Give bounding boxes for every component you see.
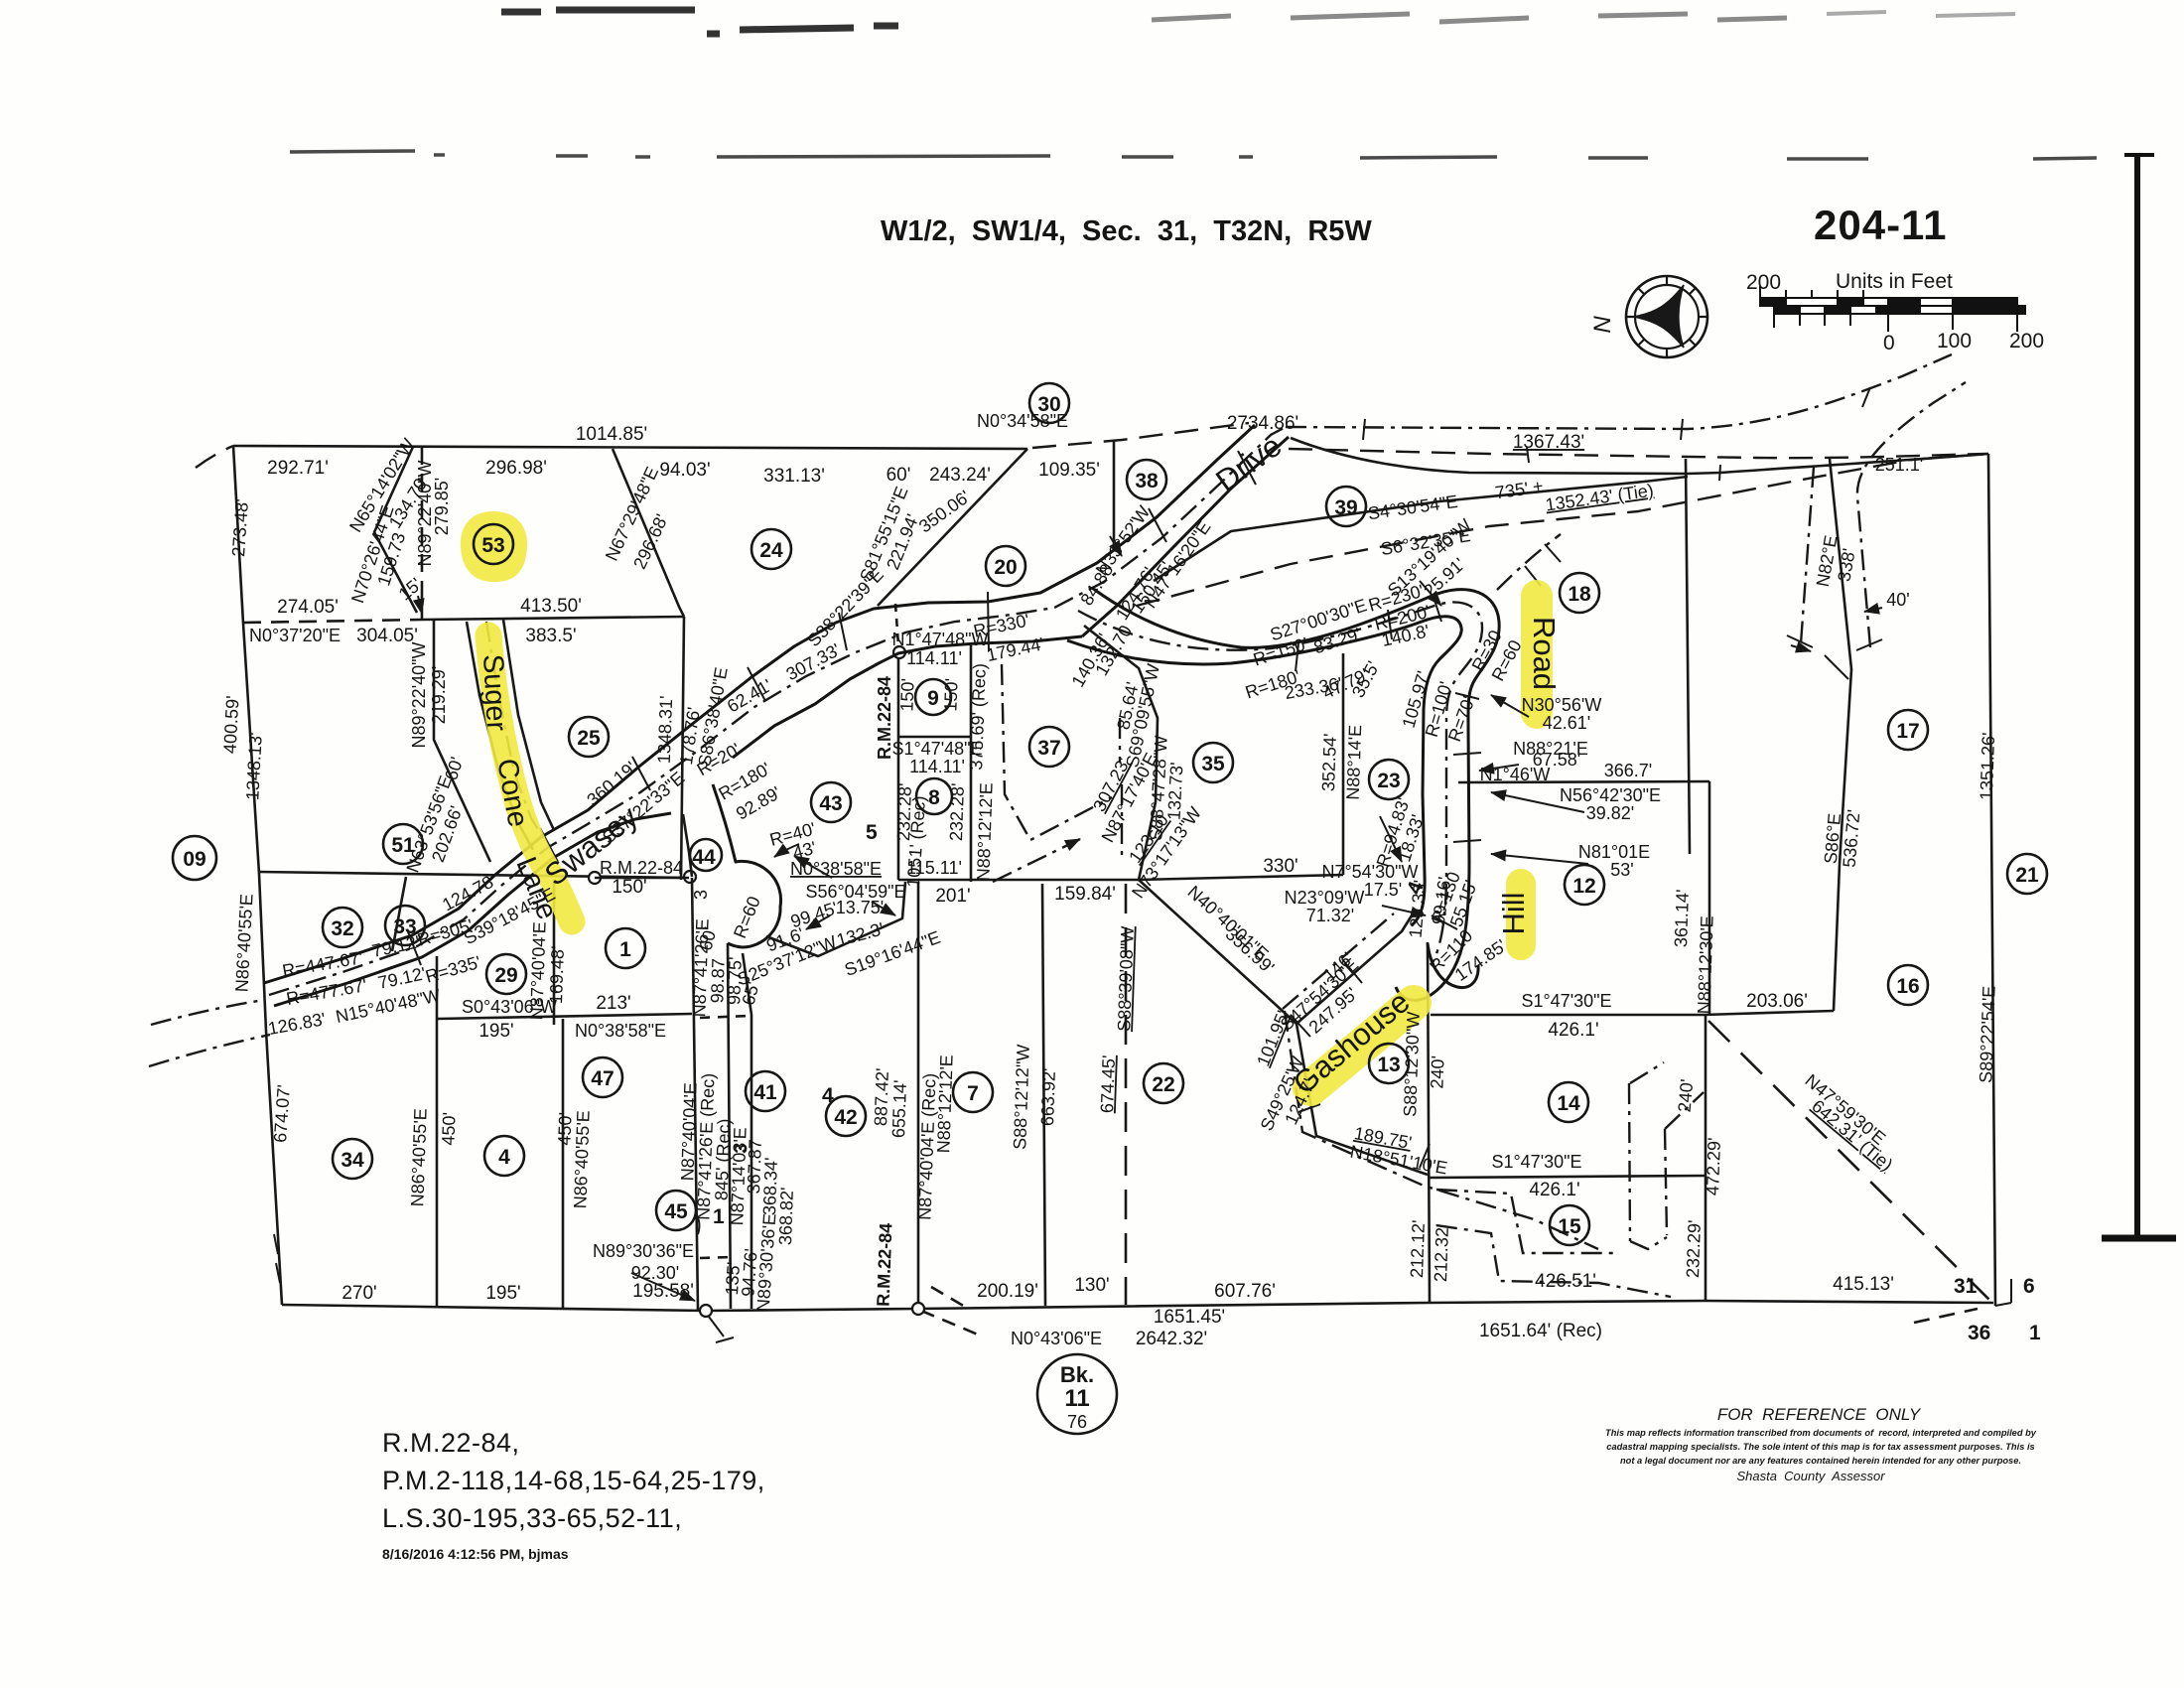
svg-text:274.05': 274.05' [277, 597, 339, 618]
svg-text:N88°12'12'E: N88°12'12'E [933, 1055, 956, 1154]
svg-text:39: 39 [1334, 496, 1357, 519]
svg-text:4: 4 [498, 1146, 510, 1169]
svg-text:114.11': 114.11' [909, 757, 965, 776]
svg-text:1: 1 [713, 1205, 725, 1228]
svg-text:200: 200 [2009, 330, 2044, 352]
svg-text:N7°54'30"W: N7°54'30"W [1321, 862, 1418, 882]
svg-text:472.29': 472.29' [1703, 1137, 1724, 1196]
svg-text:8: 8 [928, 786, 940, 809]
svg-text:663.92': 663.92' [1037, 1067, 1059, 1126]
svg-text:674.07': 674.07' [270, 1084, 294, 1144]
svg-text:212.32': 212.32' [1431, 1223, 1452, 1282]
svg-text:2642.32': 2642.32' [1136, 1329, 1207, 1349]
svg-text:L.S.30-195,33-65,52-11,: L.S.30-195,33-65,52-11, [382, 1503, 682, 1533]
svg-text:N88°12'12'E: N88°12'12'E [973, 782, 996, 882]
svg-text:361.14': 361.14' [1671, 889, 1693, 947]
svg-text:40': 40' [1886, 590, 1909, 610]
svg-text:P.M.2-118,14-68,15-64,25-179,: P.M.2-118,14-68,15-64,25-179, [382, 1466, 765, 1495]
svg-text:383.5': 383.5' [525, 626, 576, 646]
svg-text:N0°38'58"E: N0°38'58"E [575, 1021, 666, 1041]
svg-text:240': 240' [1675, 1078, 1698, 1113]
svg-text:31: 31 [1954, 1275, 1978, 1298]
svg-text:20: 20 [994, 556, 1017, 579]
svg-text:17: 17 [1896, 720, 1919, 743]
svg-text:R.M.22-84: R.M.22-84 [600, 858, 683, 878]
svg-text:N0°43'06"E: N0°43'06"E [1011, 1329, 1102, 1348]
svg-text:FOR REFERENCE ONLY: FOR REFERENCE ONLY [1717, 1405, 1922, 1424]
svg-text:201': 201' [935, 886, 970, 907]
svg-text:32: 32 [331, 917, 353, 940]
svg-text:43: 43 [819, 792, 842, 815]
svg-text:331.13': 331.13' [763, 466, 825, 487]
svg-text:150': 150' [612, 877, 646, 898]
svg-text:415.13': 415.13' [1833, 1274, 1894, 1295]
svg-text:195': 195' [478, 1021, 513, 1042]
svg-text:674.45': 674.45' [1097, 1055, 1119, 1113]
svg-text:413.50': 413.50' [520, 596, 582, 617]
svg-text:N88°14'E: N88°14'E [1343, 725, 1366, 800]
svg-text:Suger: Suger [477, 653, 512, 732]
svg-text:53': 53' [1610, 860, 1633, 880]
svg-text:S88°12'12"W: S88°12'12"W [1010, 1044, 1033, 1150]
svg-text:17.5': 17.5' [1364, 880, 1402, 900]
svg-text:44: 44 [692, 846, 716, 869]
svg-text:35: 35 [1201, 753, 1225, 775]
svg-text:426.51': 426.51' [1535, 1271, 1596, 1292]
svg-text:3: 3 [691, 890, 711, 900]
svg-text:36: 36 [1968, 1322, 1990, 1344]
svg-text:1651.45': 1651.45' [1154, 1307, 1225, 1328]
svg-text:42: 42 [834, 1106, 857, 1129]
svg-text:S1°47'30"E: S1°47'30"E [1491, 1152, 1581, 1172]
svg-text:352.54': 352.54' [1318, 733, 1340, 791]
svg-text:169.48': 169.48' [546, 945, 568, 1004]
svg-text:15: 15 [1558, 1215, 1581, 1238]
svg-text:45: 45 [664, 1200, 688, 1223]
svg-text:34: 34 [341, 1149, 364, 1172]
svg-text:1651.64' (Rec): 1651.64' (Rec) [1479, 1321, 1602, 1341]
svg-text:213': 213' [596, 993, 630, 1014]
svg-text:12: 12 [1572, 875, 1595, 898]
svg-text:195.58': 195.58' [632, 1281, 694, 1302]
svg-text:24: 24 [759, 539, 783, 562]
svg-text:13.75': 13.75' [836, 898, 884, 917]
svg-text:N56°42'30"E: N56°42'30"E [1560, 785, 1661, 805]
svg-text:204-11: 204-11 [1814, 202, 1947, 248]
svg-text:1351.26': 1351.26' [1977, 732, 1998, 800]
svg-text:51: 51 [391, 834, 415, 857]
svg-text:Bk.: Bk. [1060, 1362, 1094, 1387]
svg-text:N86°40'55'E: N86°40'55'E [570, 1110, 593, 1209]
svg-text:R.M.22-84: R.M.22-84 [874, 1222, 896, 1307]
svg-text:47: 47 [591, 1067, 614, 1090]
svg-text:219.29': 219.29' [429, 666, 449, 725]
svg-text:16: 16 [1896, 975, 1919, 998]
svg-text:6: 6 [2023, 1275, 2035, 1298]
svg-text:22: 22 [1152, 1073, 1174, 1096]
svg-text:21: 21 [2015, 864, 2039, 887]
svg-text:N23°09'W: N23°09'W [1285, 888, 1365, 908]
svg-text:3: 3 [731, 1143, 751, 1154]
svg-text:Units in Feet: Units in Feet [1836, 270, 1953, 293]
svg-text:9: 9 [927, 687, 939, 710]
svg-text:18: 18 [1568, 583, 1591, 606]
svg-text:109.35': 109.35' [1038, 460, 1100, 481]
svg-text:N89°30'36"E: N89°30'36"E [593, 1241, 694, 1261]
svg-text:Shasta County Assessor: Shasta County Assessor [1736, 1469, 1885, 1483]
svg-text:100: 100 [1937, 330, 1972, 352]
svg-text:Road: Road [1527, 617, 1562, 690]
svg-text:N1°46'W: N1°46'W [1480, 765, 1551, 784]
svg-text:92.30': 92.30' [631, 1263, 679, 1283]
svg-text:1348.13': 1348.13' [242, 732, 266, 800]
svg-text:N86°40'55'E: N86°40'55'E [407, 1108, 430, 1207]
svg-text:330': 330' [1263, 856, 1297, 877]
svg-text:94.03': 94.03' [659, 460, 710, 481]
svg-text:296.98': 296.98' [485, 458, 547, 479]
svg-text:This map reflects information: This map reflects information transcribe… [1605, 1428, 2037, 1438]
svg-text:13: 13 [1377, 1054, 1400, 1076]
svg-text:273.48': 273.48' [228, 498, 252, 558]
svg-text:0: 0 [1883, 332, 1895, 354]
svg-text:29: 29 [494, 964, 517, 987]
svg-text:426.1': 426.1' [1529, 1180, 1579, 1200]
svg-text:292.71': 292.71' [267, 458, 329, 479]
svg-text:1367.43': 1367.43' [1513, 432, 1584, 453]
svg-text:30: 30 [1037, 393, 1060, 416]
svg-text:33: 33 [393, 915, 416, 938]
svg-text:cadastral mapping specialists.: cadastral mapping specialists. The sole … [1606, 1442, 2034, 1452]
svg-text:243.24': 243.24' [929, 465, 991, 486]
svg-text:N88°12'30'E: N88°12'30'E [1694, 915, 1716, 1015]
svg-text:53: 53 [481, 534, 504, 557]
svg-text:426.1': 426.1' [1548, 1020, 1598, 1041]
svg-text:42.61': 42.61' [1543, 713, 1590, 733]
svg-text:41: 41 [753, 1081, 777, 1104]
svg-text:251.1': 251.1' [1875, 455, 1923, 475]
svg-text:375.69' (Rec): 375.69' (Rec) [966, 663, 990, 771]
svg-text:23: 23 [1377, 770, 1400, 792]
svg-text:655.14': 655.14' [888, 1079, 910, 1138]
svg-text:S88°39'08"W: S88°39'08"W [1114, 925, 1138, 1032]
svg-text:8/16/2016 4:12:56 PM, bjmas: 8/16/2016 4:12:56 PM, bjmas [382, 1546, 569, 1562]
svg-text:400.59': 400.59' [219, 695, 242, 754]
svg-text:N89°22'40"W: N89°22'40"W [409, 641, 429, 748]
svg-text:114.11': 114.11' [906, 648, 962, 668]
svg-text:279.85': 279.85' [432, 478, 452, 536]
svg-text:212.12': 212.12' [1407, 1219, 1429, 1278]
svg-text:366.7': 366.7' [1604, 761, 1652, 780]
svg-text:N81°01E: N81°01E [1578, 842, 1650, 862]
svg-text:232.28': 232.28' [946, 782, 968, 841]
svg-text:N0°37'20"E: N0°37'20"E [249, 626, 341, 645]
svg-text:S1°47'30"E: S1°47'30"E [1521, 991, 1611, 1011]
svg-text:60': 60' [887, 465, 911, 486]
svg-text:1014.85': 1014.85' [576, 424, 647, 445]
svg-text:S88°12'30"W: S88°12'30"W [1400, 1011, 1424, 1117]
svg-text:R.M.22-84,: R.M.22-84, [382, 1428, 520, 1458]
svg-text:1: 1 [619, 938, 631, 961]
svg-text:1: 1 [2029, 1322, 2041, 1344]
svg-text:39.82': 39.82' [1586, 803, 1634, 823]
svg-text:76: 76 [1067, 1412, 1087, 1432]
svg-text:2734.86': 2734.86' [1227, 413, 1298, 434]
svg-text:37: 37 [1037, 737, 1060, 760]
svg-text:Hill: Hill [1496, 892, 1531, 934]
svg-text:11: 11 [1064, 1385, 1089, 1412]
svg-text:270': 270' [341, 1283, 376, 1304]
svg-text:N: N [1589, 316, 1616, 334]
svg-text:W1/2, SW1/4, Sec. 31, T32N: W1/2, SW1/4, Sec. 31, T32N, R5W [881, 215, 1372, 247]
svg-text:09: 09 [183, 848, 205, 871]
svg-text:N30°56'W: N30°56'W [1522, 695, 1602, 715]
svg-text:240': 240' [1427, 1055, 1447, 1089]
svg-text:200.19': 200.19' [977, 1281, 1038, 1302]
svg-text:S89°22'54'E: S89°22'54'E [1976, 985, 1998, 1083]
svg-text:232.29': 232.29' [1683, 1219, 1705, 1278]
svg-text:38: 38 [1135, 470, 1159, 492]
svg-text:1348.31': 1348.31' [654, 695, 676, 764]
svg-text:159.84': 159.84' [1054, 884, 1116, 905]
svg-text:25: 25 [577, 727, 601, 750]
svg-text:607.76': 607.76' [1214, 1281, 1276, 1302]
svg-text:195': 195' [485, 1283, 520, 1304]
svg-text:4: 4 [822, 1084, 834, 1107]
svg-text:130': 130' [1074, 1275, 1109, 1296]
svg-text:14: 14 [1557, 1092, 1580, 1115]
svg-text:71.32': 71.32' [1306, 906, 1354, 925]
svg-text:450': 450' [438, 1112, 459, 1146]
svg-text:7: 7 [967, 1082, 979, 1105]
svg-text:200: 200 [1746, 271, 1781, 294]
svg-text:not a legal document nor are a: not a legal document nor are any feature… [1620, 1456, 2021, 1466]
svg-text:5: 5 [866, 821, 878, 844]
svg-text:203.06': 203.06' [1746, 991, 1808, 1012]
